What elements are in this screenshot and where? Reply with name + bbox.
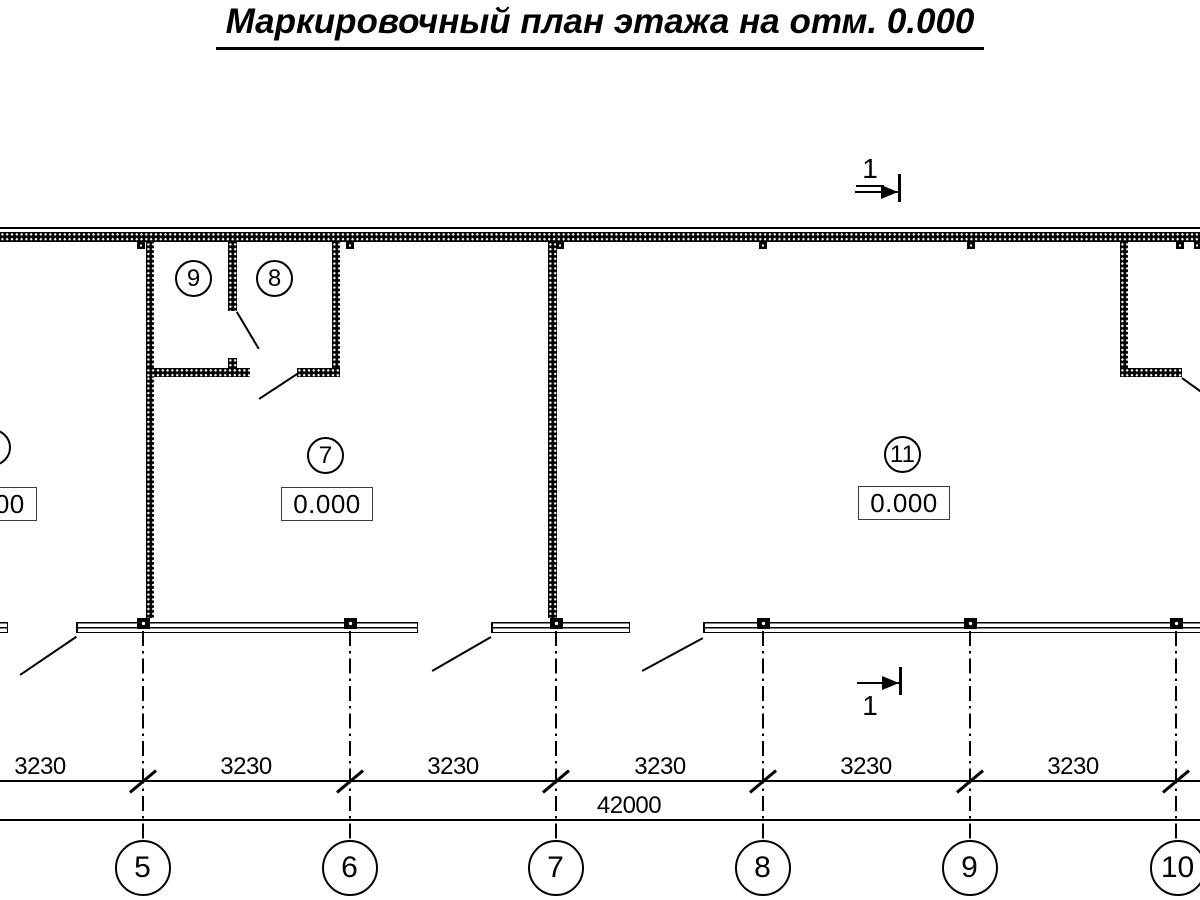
- wall-segment-room9-bottom: [146, 368, 250, 377]
- room-tag-8: 8: [256, 260, 293, 297]
- window-sill-cap: [417, 622, 419, 633]
- grid-axis-bubble-9: 9: [942, 840, 998, 896]
- grid-axis-bubble-5: 5: [115, 840, 171, 896]
- door-swing-line: [1182, 377, 1200, 391]
- room-tag-left-partial: [0, 429, 11, 466]
- dimension-label: 3230: [615, 753, 705, 781]
- window-leader-line: [642, 637, 704, 671]
- wall-door-post: [228, 358, 237, 368]
- wall-segment-axis5: [146, 242, 155, 618]
- wall-segment-axis7: [548, 242, 557, 618]
- grid-axis-bubble-8: 8: [735, 840, 791, 896]
- grid-axis-line: [969, 631, 971, 840]
- dimension-label: 3230: [821, 753, 911, 781]
- column-marker: [967, 242, 975, 249]
- column-marker: [759, 242, 767, 249]
- section-mark-bottom-label: 1: [856, 690, 884, 722]
- window-sill: [76, 622, 418, 633]
- dimension-label: 3230: [408, 753, 498, 781]
- wall-segment-partition-9-8: [228, 242, 237, 311]
- section-arrow-top-bar: [898, 174, 901, 202]
- wall-top-edge-line: [0, 227, 1200, 229]
- elevation-mark-left-partial: 0.000: [0, 487, 37, 521]
- column-marker-square: [550, 618, 563, 629]
- dimension-total-label: 42000: [579, 792, 679, 820]
- column-marker-square: [964, 618, 977, 629]
- elevation-mark-room7: 0.000: [281, 487, 373, 521]
- wall-segment-right-foot: [1120, 368, 1182, 377]
- section-mark-top-label: 1: [856, 153, 884, 187]
- column-marker: [137, 242, 145, 249]
- column-marker: [346, 242, 354, 249]
- door-swing-line: [236, 311, 259, 349]
- window-sill-cap: [703, 622, 705, 633]
- grid-axis-line: [349, 631, 351, 840]
- column-marker: [1194, 242, 1200, 249]
- grid-axis-line: [142, 631, 144, 840]
- grid-axis-line: [1175, 631, 1177, 840]
- room-tag-9: 9: [175, 260, 212, 297]
- elevation-mark-room11: 0.000: [858, 486, 950, 520]
- column-marker: [1176, 242, 1184, 249]
- room-tag-7: 7: [307, 437, 344, 474]
- dimension-label: 3230: [201, 753, 291, 781]
- section-arrow-icon: [882, 676, 899, 690]
- column-marker-square: [757, 618, 770, 629]
- column-marker-square: [137, 618, 150, 629]
- dimension-line-bays: [0, 780, 1200, 782]
- door-swing-line: [259, 373, 298, 399]
- page-title: Маркировочный план этажа на отм. 0.000: [0, 2, 1200, 50]
- window-leader-line: [432, 636, 492, 671]
- grid-axis-bubble-10: 10: [1150, 840, 1200, 896]
- room-tag-11: 11: [884, 436, 921, 473]
- window-sill-cap: [76, 622, 78, 633]
- column-marker: [556, 242, 564, 249]
- window-sill-cap: [491, 622, 493, 633]
- grid-axis-line: [762, 631, 764, 840]
- wall-segment-right: [1120, 242, 1128, 377]
- column-marker-square: [344, 618, 357, 629]
- wall-segment-room8-right: [332, 242, 341, 377]
- dimension-label: 3230: [1028, 753, 1118, 781]
- section-arrow-bottom-bar: [899, 667, 902, 695]
- floor-plan-canvas: Маркировочный план этажа на отм. 0.000 1: [0, 0, 1200, 900]
- window-leader-line: [20, 636, 77, 675]
- wall-segment-top: [0, 232, 1200, 242]
- section-arrow-icon: [881, 185, 898, 199]
- wall-segment-room8-foot: [297, 368, 340, 377]
- grid-axis-bubble-6: 6: [322, 840, 378, 896]
- window-sill-cap: [7, 622, 9, 633]
- window-sill: [703, 622, 1200, 633]
- grid-axis-bubble-7: 7: [528, 840, 584, 896]
- window-sill-cap: [629, 622, 631, 633]
- dimension-label: 3230: [0, 753, 85, 781]
- grid-axis-line: [555, 631, 557, 840]
- column-marker-square: [1170, 618, 1183, 629]
